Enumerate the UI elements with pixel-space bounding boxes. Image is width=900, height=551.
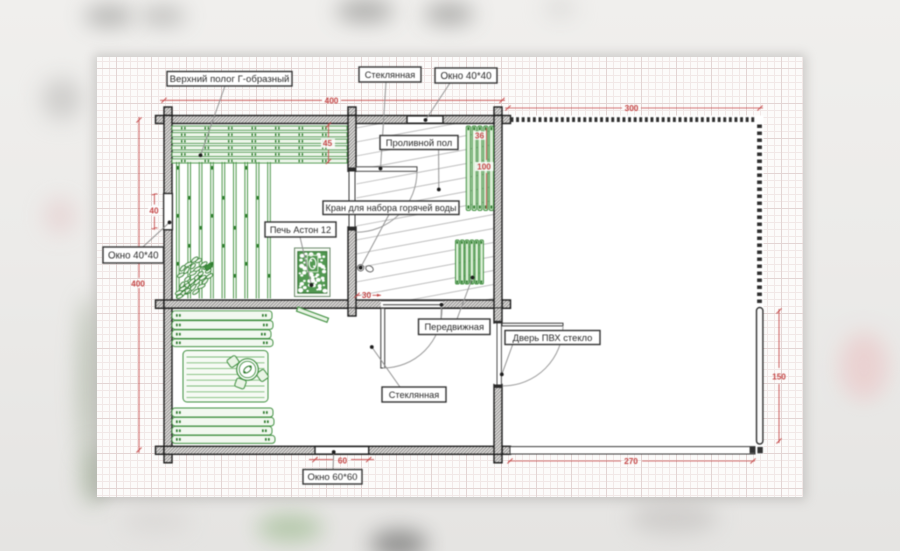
svg-text:Стеклянная: Стеклянная	[365, 70, 416, 80]
svg-text:150: 150	[772, 371, 786, 381]
svg-text:100: 100	[477, 162, 491, 172]
svg-text:270: 270	[624, 456, 638, 466]
svg-text:400: 400	[325, 95, 339, 105]
svg-text:45: 45	[323, 138, 333, 148]
svg-text:Проливной пол: Проливной пол	[386, 137, 452, 148]
svg-text:Окно 40*40: Окно 40*40	[108, 250, 159, 261]
svg-text:Кран для набора горячей воды: Кран для набора горячей воды	[326, 203, 457, 213]
svg-text:Передвижная: Передвижная	[424, 321, 484, 332]
svg-text:Печь Астон 12: Печь Астон 12	[270, 225, 331, 235]
svg-text:Окно 60*60: Окно 60*60	[307, 472, 357, 483]
svg-text:40: 40	[149, 206, 159, 216]
svg-text:60: 60	[338, 456, 348, 466]
svg-text:30: 30	[362, 290, 372, 300]
svg-text:300: 300	[625, 103, 639, 113]
svg-text:Верхний полог Г-образный: Верхний полог Г-образный	[170, 74, 290, 85]
svg-text:36: 36	[475, 131, 485, 141]
svg-text:400: 400	[131, 278, 145, 288]
svg-text:Стеклянная: Стеклянная	[389, 390, 440, 400]
svg-text:Дверь ПВХ стекло: Дверь ПВХ стекло	[513, 332, 593, 343]
svg-text:Окно 40*40: Окно 40*40	[440, 71, 492, 82]
